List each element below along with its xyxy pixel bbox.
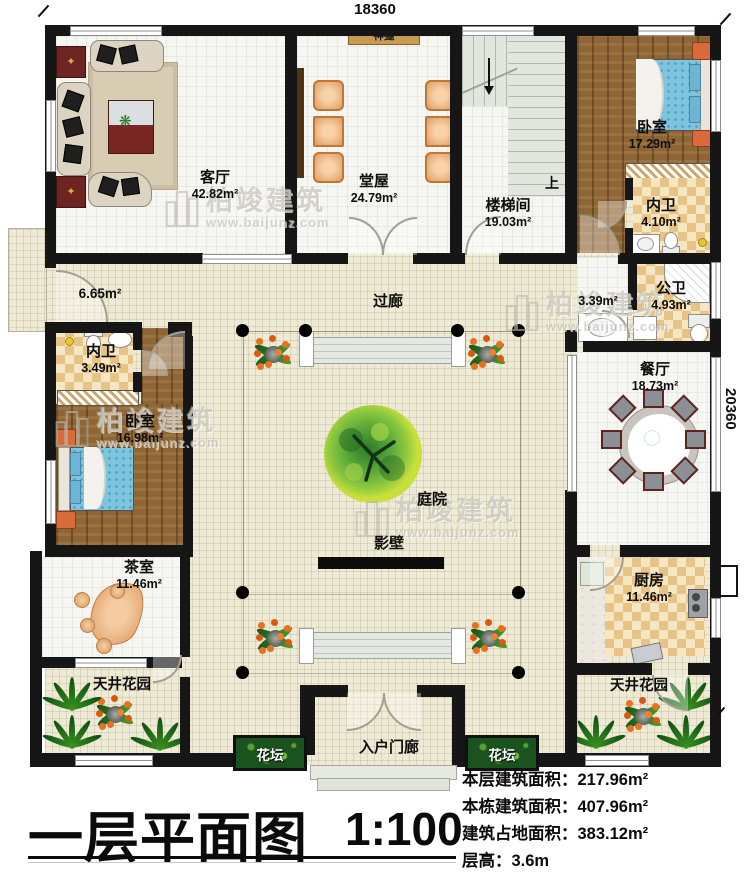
window	[638, 26, 695, 36]
window	[75, 755, 153, 766]
wall	[499, 253, 565, 264]
area-label-vanity: 3.39m²	[578, 294, 618, 308]
hall-chair	[313, 80, 344, 111]
room-label-patio-left: 天井花园	[93, 677, 151, 693]
dining-chair	[601, 430, 622, 449]
nightstand	[56, 429, 76, 447]
window	[70, 26, 162, 36]
window	[585, 755, 649, 766]
table-plant: ❋	[119, 114, 132, 129]
entry-steps	[317, 778, 450, 791]
wall	[45, 322, 142, 333]
planter	[250, 332, 296, 378]
hall-chair	[313, 116, 344, 147]
wall	[628, 257, 637, 310]
wall	[625, 228, 633, 254]
bed-left-pillow	[70, 452, 81, 476]
room-label-bedroom-left: 卧室16.98m²	[117, 414, 164, 445]
bed-right-pillow	[689, 96, 701, 123]
basin	[637, 237, 654, 251]
wall	[583, 341, 710, 352]
walkway-bench-bottom	[312, 632, 453, 659]
flower-bed-label: 花坛	[468, 744, 536, 764]
stairs-direction-arrow	[484, 86, 494, 95]
window	[46, 460, 56, 524]
column-dot	[236, 324, 249, 337]
wall	[180, 677, 190, 755]
screen-wall-bar	[318, 557, 444, 569]
wall	[290, 253, 348, 264]
dining-chair	[685, 430, 706, 449]
dining-chair	[643, 472, 664, 491]
courtyard-tree	[318, 402, 428, 508]
palm-plant	[140, 716, 178, 754]
room-label-public-bath: 公卫4.93m²	[651, 281, 691, 312]
tea-stool	[80, 618, 95, 633]
room-label-courtyard: 庭院	[417, 492, 447, 509]
washer	[633, 316, 657, 340]
sofa-pillow	[118, 44, 138, 64]
room-label-entry-porch: 入户门廊	[359, 740, 419, 757]
stairs-direction-line	[488, 58, 490, 86]
floor-drain	[65, 337, 74, 346]
wall	[133, 372, 142, 392]
planter	[620, 694, 666, 740]
planter	[464, 332, 510, 378]
room-label-patio-right: 天井花园	[610, 678, 668, 694]
walkway-column	[299, 628, 314, 664]
floor-drain	[698, 238, 707, 247]
stat-line-floor-area: 本层建筑面积：217.96m²	[462, 766, 648, 790]
tea-stool	[74, 592, 90, 608]
window	[202, 254, 292, 264]
palm-plant	[576, 714, 614, 752]
wall	[565, 25, 577, 264]
window	[567, 355, 577, 492]
window	[711, 60, 721, 132]
tv-cabinet	[297, 68, 304, 178]
closet-left	[57, 390, 139, 406]
sheet-title: 一层平面图	[28, 793, 308, 873]
stove-burner	[692, 593, 700, 601]
dimension-tick	[38, 5, 50, 17]
side-table: ✦	[56, 46, 86, 78]
nightstand	[56, 511, 76, 529]
wall	[300, 685, 348, 697]
stairs-right-flight	[508, 36, 565, 196]
floor-outdoor-strip	[8, 228, 47, 332]
title-underline-2	[28, 862, 456, 863]
walkway-column	[451, 628, 466, 664]
wall	[450, 25, 462, 264]
palm-plant	[666, 714, 704, 752]
planter	[466, 616, 512, 662]
room-label-hall: 堂屋24.79m²	[351, 174, 398, 205]
stat-line-building-area: 本栋建筑面积：407.96m²	[462, 793, 648, 817]
side-table: ✦	[56, 176, 86, 208]
tea-stool	[96, 638, 112, 654]
sofa-pillow	[63, 144, 83, 164]
wall	[180, 557, 190, 657]
room-label-kitchen: 厨房11.46m²	[626, 573, 672, 604]
hall-chair	[313, 152, 344, 183]
room-label-dining: 餐厅18.73m²	[632, 362, 679, 393]
wall	[577, 545, 590, 557]
wall	[413, 253, 465, 264]
walkway-bench-top	[312, 337, 453, 364]
column-dot	[299, 324, 312, 337]
chimney-bump	[719, 565, 738, 597]
palm-plant	[52, 714, 90, 752]
nightstand	[692, 42, 712, 60]
window	[46, 100, 56, 172]
flower-bed-label: 花坛	[236, 744, 304, 764]
room-label-ensuite-left: 内卫3.49m²	[81, 344, 121, 375]
wall	[625, 178, 633, 200]
column-dot	[512, 324, 525, 337]
column-dot	[512, 666, 525, 679]
dimension-top: 18360	[354, 2, 396, 19]
window	[711, 598, 721, 638]
palm-plant	[52, 676, 90, 714]
room-label-tea-room: 茶室11.46m²	[116, 560, 162, 591]
wall	[45, 253, 203, 264]
sheet-scale: 1:100	[345, 802, 463, 856]
bed-right-pillow	[689, 64, 701, 91]
bed-left-duvet	[84, 447, 106, 509]
wall	[417, 685, 465, 697]
wall	[577, 663, 652, 675]
wall	[565, 330, 577, 352]
bed-left-headboard	[58, 447, 70, 511]
stove-burner	[692, 604, 700, 612]
flower-bed-left: 花坛	[233, 735, 307, 771]
bed-left-pillow	[70, 480, 81, 504]
wall	[688, 663, 710, 675]
column-dot	[236, 666, 249, 679]
sofa-pillow	[121, 177, 140, 196]
column-dot	[236, 586, 249, 599]
window	[75, 658, 147, 668]
column-dot	[451, 324, 464, 337]
dimension-tick	[720, 13, 732, 25]
planter	[252, 616, 298, 662]
wall	[620, 545, 710, 557]
title-underline	[28, 856, 456, 859]
stairs-up-label: 上	[545, 176, 559, 192]
room-label-bedroom-right: 卧室17.29m²	[629, 120, 676, 151]
window	[711, 357, 721, 492]
dimension-right: 20360	[722, 388, 739, 430]
room-label-stairwell: 楼梯间19.03m²	[485, 198, 532, 229]
room-label-corridor: 过廊	[373, 294, 403, 311]
wall	[565, 490, 577, 755]
room-label-screen-wall: 影壁	[374, 536, 404, 553]
area-label-side-porch: 6.65m²	[79, 286, 122, 301]
room-label-living: 客厅42.82m²	[192, 170, 239, 201]
toilet-bowl	[664, 232, 678, 249]
window	[711, 262, 721, 319]
column-dot	[512, 586, 525, 599]
dining-table-center	[644, 430, 660, 446]
nightstand	[692, 130, 712, 147]
stat-line-footprint-area: 建筑占地面积：383.12m²	[462, 820, 648, 844]
floor-plan-sheet: ✦ ✦ ❋ 神龛	[0, 0, 750, 890]
room-label-ensuite-right: 内卫4.10m²	[641, 198, 681, 229]
window	[462, 26, 534, 36]
stat-line-storey-height: 层高：3.6m	[462, 847, 549, 871]
wall	[285, 25, 297, 264]
wall	[45, 545, 193, 557]
